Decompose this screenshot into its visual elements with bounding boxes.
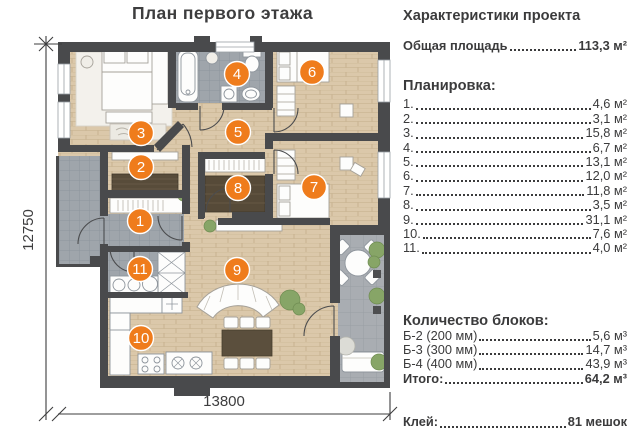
pillow: [127, 51, 148, 63]
wall-hall-right: [265, 133, 273, 149]
wall-bedroom3-right: [168, 42, 176, 108]
item-num: 3.: [403, 126, 414, 140]
glue-label: Клей:: [403, 415, 438, 429]
pillow: [279, 67, 290, 80]
terrace-parapet: [334, 382, 390, 388]
svg-text:2: 2: [137, 159, 145, 176]
dotted-leader: [479, 368, 583, 370]
panel-heading: Характеристики проекта: [403, 8, 627, 24]
room-marker-2: 2: [129, 155, 154, 180]
wall-bath-bottom: [176, 103, 198, 110]
block-label: Б-3 (300 мм): [403, 343, 477, 357]
svg-text:5: 5: [234, 124, 242, 141]
round-table: [345, 250, 371, 276]
dim-label-width: 13800: [203, 393, 245, 410]
item-value: 7,6 м²: [593, 227, 627, 241]
dotted-leader: [416, 151, 591, 153]
wall-living-right: [330, 225, 340, 303]
wall-pier: [250, 36, 262, 42]
dotted-leader: [416, 180, 584, 182]
nightstand: [340, 104, 353, 117]
decor: [206, 52, 218, 64]
dotted-leader: [416, 194, 585, 196]
item-num: 5.: [403, 155, 414, 169]
block-label: Б-4 (400 мм): [403, 357, 477, 371]
item-num: 10.: [403, 227, 421, 241]
block-row: Б-2 (200 мм)5,6 м³: [403, 329, 627, 343]
dim-label-height: 12750: [20, 209, 37, 251]
planter-pot: [373, 270, 381, 278]
stove: [138, 354, 164, 374]
wall-room11-top: [134, 246, 188, 252]
plant-icon: [369, 242, 385, 258]
svg-text:6: 6: [308, 64, 316, 81]
item-value: 11,8 м²: [586, 184, 627, 198]
item-num: 1.: [403, 97, 414, 111]
item-num: 6.: [403, 169, 414, 183]
dotted-leader: [416, 108, 591, 110]
block-value: 43,9 м³: [585, 357, 627, 371]
wall-living-right: [330, 336, 340, 388]
item-num: 9.: [403, 213, 414, 227]
item-num: 2.: [403, 112, 414, 126]
bedroom-3-furniture: [76, 46, 172, 140]
item-value: 3,1 м²: [593, 112, 627, 126]
dotted-leader: [422, 252, 591, 254]
layout-item: 6.12,0 м²: [403, 169, 627, 183]
block-row: Б-4 (400 мм)43,9 м³: [403, 357, 627, 371]
wall-pier: [194, 36, 210, 42]
pillow: [279, 186, 290, 200]
plant-icon: [369, 288, 385, 304]
blocks-list: Б-2 (200 мм)5,6 м³ Б-3 (300 мм)14,7 м³ Б…: [403, 329, 627, 387]
glue-row: Клей: 81 мешок: [403, 415, 627, 429]
wall-room8-left: [198, 152, 205, 218]
item-value: 13,1 м²: [585, 155, 627, 169]
wall-terrace-top: [334, 225, 390, 235]
total-value: 64,2 м³: [585, 372, 627, 386]
wall-living-top: [218, 218, 330, 225]
total-area-value: 113,3 м²: [578, 39, 627, 53]
planter-pot: [373, 306, 381, 314]
dotted-leader: [416, 122, 591, 124]
room-marker-3: 3: [129, 121, 154, 146]
svg-text:8: 8: [234, 180, 242, 197]
wall-left-lower: [100, 148, 108, 216]
wall-room8-bottom: [232, 212, 265, 219]
layout-item: 5.13,1 м²: [403, 155, 627, 169]
plant-icon: [368, 256, 380, 268]
layout-item: 2.3,1 м²: [403, 112, 627, 126]
block-label: Б-2 (200 мм): [403, 329, 477, 343]
item-num: 8.: [403, 198, 414, 212]
dotted-leader: [416, 209, 591, 211]
svg-text:4: 4: [233, 66, 241, 83]
room-marker-9: 9: [225, 258, 250, 283]
wall-room2-bottom: [108, 190, 182, 198]
item-value: 12,0 м²: [585, 169, 627, 183]
layout-heading: Планировка:: [403, 78, 627, 94]
pillow: [279, 52, 290, 65]
block-value: 5,6 м³: [593, 329, 627, 343]
dining-table: [222, 330, 272, 356]
layout-item: 10.7,6 м²: [403, 227, 627, 241]
room-marker-5: 5: [226, 120, 251, 145]
wall-hall-right: [265, 174, 273, 225]
fridge: [110, 313, 130, 330]
nightstand: [340, 157, 353, 170]
item-value: 15,8 м²: [585, 126, 627, 140]
dotted-leader: [479, 353, 583, 355]
room-marker-10: 10: [129, 326, 154, 351]
wall-bottom: [100, 376, 340, 388]
floor-plan-sheet: План первого этажа: [0, 0, 632, 433]
block-value: 14,7 м³: [585, 343, 627, 357]
pillow: [279, 202, 290, 216]
item-value: 31,1 м²: [585, 213, 627, 227]
dresser: [277, 86, 295, 116]
layout-item: 11.4,0 м²: [403, 241, 627, 255]
svg-text:1: 1: [136, 213, 144, 230]
dotted-leader: [440, 426, 566, 428]
dotted-leader: [510, 49, 577, 51]
layout-item: 8.3,5 м²: [403, 198, 627, 212]
item-value: 4,6 м²: [593, 97, 627, 111]
dotted-leader: [416, 223, 584, 225]
item-num: 4.: [403, 141, 414, 155]
plant-icon: [204, 220, 216, 232]
room-marker-8: 8: [226, 176, 251, 201]
plant-icon: [293, 303, 305, 315]
block-row: Б-3 (300 мм)14,7 м³: [403, 343, 627, 357]
blocks-heading: Количество блоков:: [403, 313, 627, 329]
room-marker-6: 6: [300, 60, 325, 85]
wall-rooms-6-7: [273, 133, 378, 141]
dotted-leader: [479, 339, 590, 341]
decor: [81, 56, 93, 68]
svg-text:11: 11: [132, 261, 148, 278]
room-marker-1: 1: [128, 209, 153, 234]
layout-item: 3.15,8 м²: [403, 126, 627, 140]
item-value: 3,5 м²: [593, 198, 627, 212]
room-marker-4: 4: [225, 62, 250, 87]
porch-edge: [56, 156, 59, 266]
dresser: [277, 150, 295, 180]
total-label: Итого:: [403, 372, 443, 386]
sink: [242, 87, 260, 101]
total-area-row: Общая площадь 113,3 м²: [403, 39, 627, 53]
svg-text:10: 10: [133, 330, 150, 347]
drain: [186, 90, 190, 94]
washer: [113, 279, 125, 291]
wall-room8-bottom: [198, 212, 204, 219]
dotted-leader: [445, 382, 582, 384]
total-area-label: Общая площадь: [403, 39, 508, 53]
item-num: 11.: [403, 241, 420, 255]
counter-top: [110, 296, 162, 313]
glue-value: 81 мешок: [568, 415, 627, 429]
wall-hall-right: [265, 42, 273, 108]
layout-list: 1.4,6 м² 2.3,1 м² 3.15,8 м² 4.6,7 м² 5.1…: [403, 97, 627, 255]
layout-item: 4.6,7 м²: [403, 141, 627, 155]
wall-room11-bottom: [108, 292, 188, 298]
wall-room8-top: [198, 152, 265, 159]
pillow: [104, 51, 125, 63]
room-marker-7: 7: [302, 175, 327, 200]
item-value: 6,7 м²: [593, 141, 627, 155]
cart: [166, 352, 212, 374]
item-value: 4,0 м²: [593, 241, 627, 255]
porch-block: [90, 256, 108, 266]
dotted-leader: [416, 137, 584, 139]
layout-item: 9.31,1 м²: [403, 213, 627, 227]
blocks-total-row: Итого:64,2 м³: [403, 372, 627, 386]
wall-entry-right: [182, 145, 190, 214]
wall-bath-bottom: [222, 103, 272, 110]
dotted-leader: [423, 237, 591, 239]
washing-machine: [221, 86, 237, 102]
closet: [150, 46, 168, 104]
layout-item: 1.4,6 м²: [403, 97, 627, 111]
item-num: 7.: [403, 184, 414, 198]
svg-text:9: 9: [233, 262, 241, 279]
room-marker-11: 11: [128, 257, 153, 282]
svg-text:3: 3: [137, 125, 145, 142]
dotted-leader: [416, 165, 584, 167]
layout-item: 7.11,8 м²: [403, 184, 627, 198]
svg-text:7: 7: [310, 179, 318, 196]
characteristics-panel: Характеристики проекта Общая площадь 113…: [403, 8, 627, 430]
terrace-parapet: [384, 235, 390, 382]
